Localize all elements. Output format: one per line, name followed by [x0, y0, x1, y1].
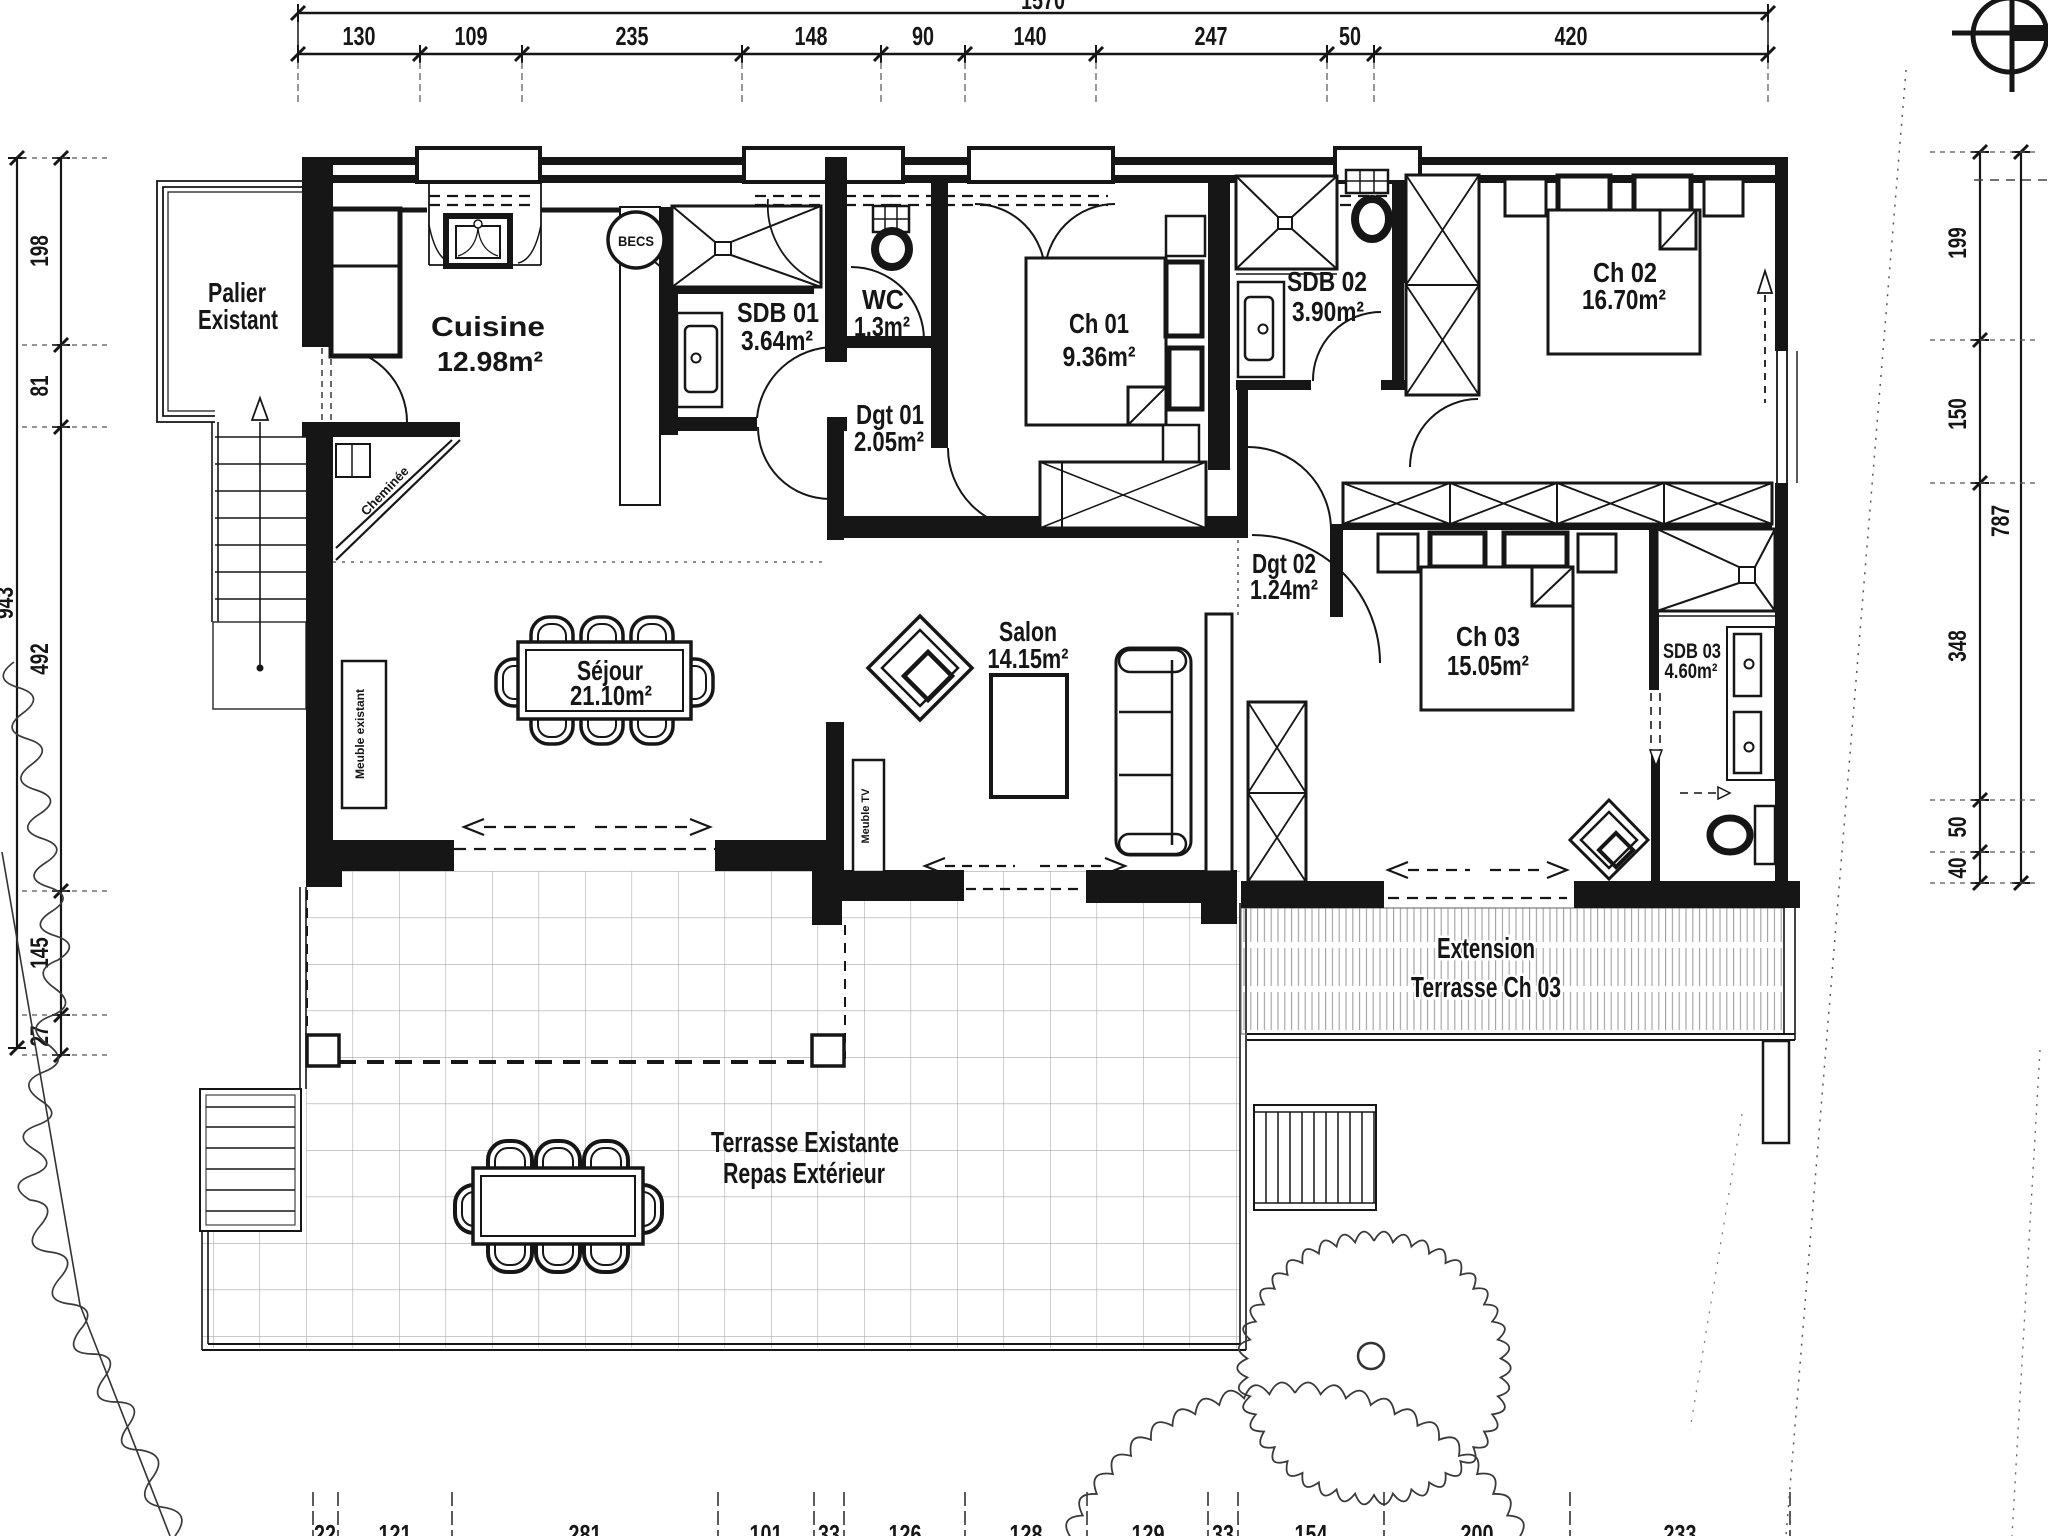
svg-text:2.05m²: 2.05m²: [854, 426, 924, 457]
svg-text:9.36m²: 9.36m²: [1063, 341, 1136, 372]
svg-text:50: 50: [1339, 21, 1361, 51]
svg-text:943: 943: [0, 587, 19, 619]
svg-text:492: 492: [26, 643, 54, 675]
svg-text:198: 198: [26, 235, 54, 267]
svg-text:Meuble existant: Meuble existant: [353, 689, 367, 779]
svg-text:140: 140: [1014, 21, 1047, 51]
svg-text:27: 27: [26, 1026, 54, 1047]
svg-text:235: 235: [616, 21, 649, 51]
svg-text:3.64m²: 3.64m²: [741, 325, 813, 356]
svg-text:14.15m²: 14.15m²: [988, 643, 1069, 674]
svg-text:1.24m²: 1.24m²: [1250, 574, 1318, 605]
svg-text:130: 130: [343, 21, 376, 51]
svg-text:81: 81: [26, 375, 54, 396]
svg-text:Ch 01: Ch 01: [1069, 308, 1129, 339]
svg-text:4.60m²: 4.60m²: [1665, 660, 1718, 683]
svg-text:Meuble TV: Meuble TV: [860, 788, 872, 844]
svg-text:Repas Extérieur: Repas Extérieur: [723, 1158, 885, 1190]
svg-text:148: 148: [795, 21, 828, 51]
svg-text:21.10m²: 21.10m²: [570, 680, 652, 711]
svg-text:129: 129: [1132, 1519, 1165, 1536]
svg-text:1570: 1570: [1021, 0, 1065, 15]
svg-text:154: 154: [1295, 1519, 1328, 1536]
svg-text:15.05m²: 15.05m²: [1447, 650, 1529, 681]
svg-text:22: 22: [314, 1519, 336, 1536]
svg-text:Extension: Extension: [1437, 933, 1535, 965]
svg-text:90: 90: [912, 21, 934, 51]
svg-text:233: 233: [1664, 1519, 1697, 1536]
svg-text:101: 101: [750, 1519, 783, 1536]
svg-text:348: 348: [1944, 630, 1972, 662]
svg-text:Existant: Existant: [198, 304, 278, 335]
svg-text:16.70m²: 16.70m²: [1582, 284, 1666, 315]
svg-text:33: 33: [818, 1519, 840, 1536]
svg-text:Terrasse Ch 03: Terrasse Ch 03: [1411, 972, 1561, 1004]
svg-text:50: 50: [1944, 817, 1972, 838]
svg-text:121: 121: [379, 1519, 412, 1536]
svg-text:128: 128: [1010, 1519, 1043, 1536]
svg-text:199: 199: [1944, 227, 1972, 259]
svg-text:787: 787: [1987, 505, 2015, 537]
svg-text:281: 281: [569, 1519, 602, 1536]
svg-text:200: 200: [1461, 1519, 1494, 1536]
svg-text:Ch 03: Ch 03: [1456, 621, 1520, 652]
svg-text:247: 247: [1195, 21, 1228, 51]
svg-text:Cuisine: Cuisine: [431, 311, 545, 342]
svg-text:126: 126: [889, 1519, 922, 1536]
svg-text:33: 33: [1212, 1519, 1234, 1536]
svg-text:Terrasse Existante: Terrasse Existante: [711, 1127, 899, 1159]
svg-text:40: 40: [1944, 858, 1972, 879]
svg-text:SDB 02: SDB 02: [1287, 266, 1367, 297]
svg-text:109: 109: [455, 21, 488, 51]
svg-text:1.3m²: 1.3m²: [854, 311, 910, 342]
svg-text:420: 420: [1555, 21, 1588, 51]
svg-text:3.90m²: 3.90m²: [1292, 296, 1364, 327]
svg-text:12.98m²: 12.98m²: [437, 346, 543, 377]
svg-text:150: 150: [1944, 398, 1972, 430]
svg-text:SDB 01: SDB 01: [737, 297, 819, 328]
svg-text:BECS: BECS: [618, 233, 654, 249]
